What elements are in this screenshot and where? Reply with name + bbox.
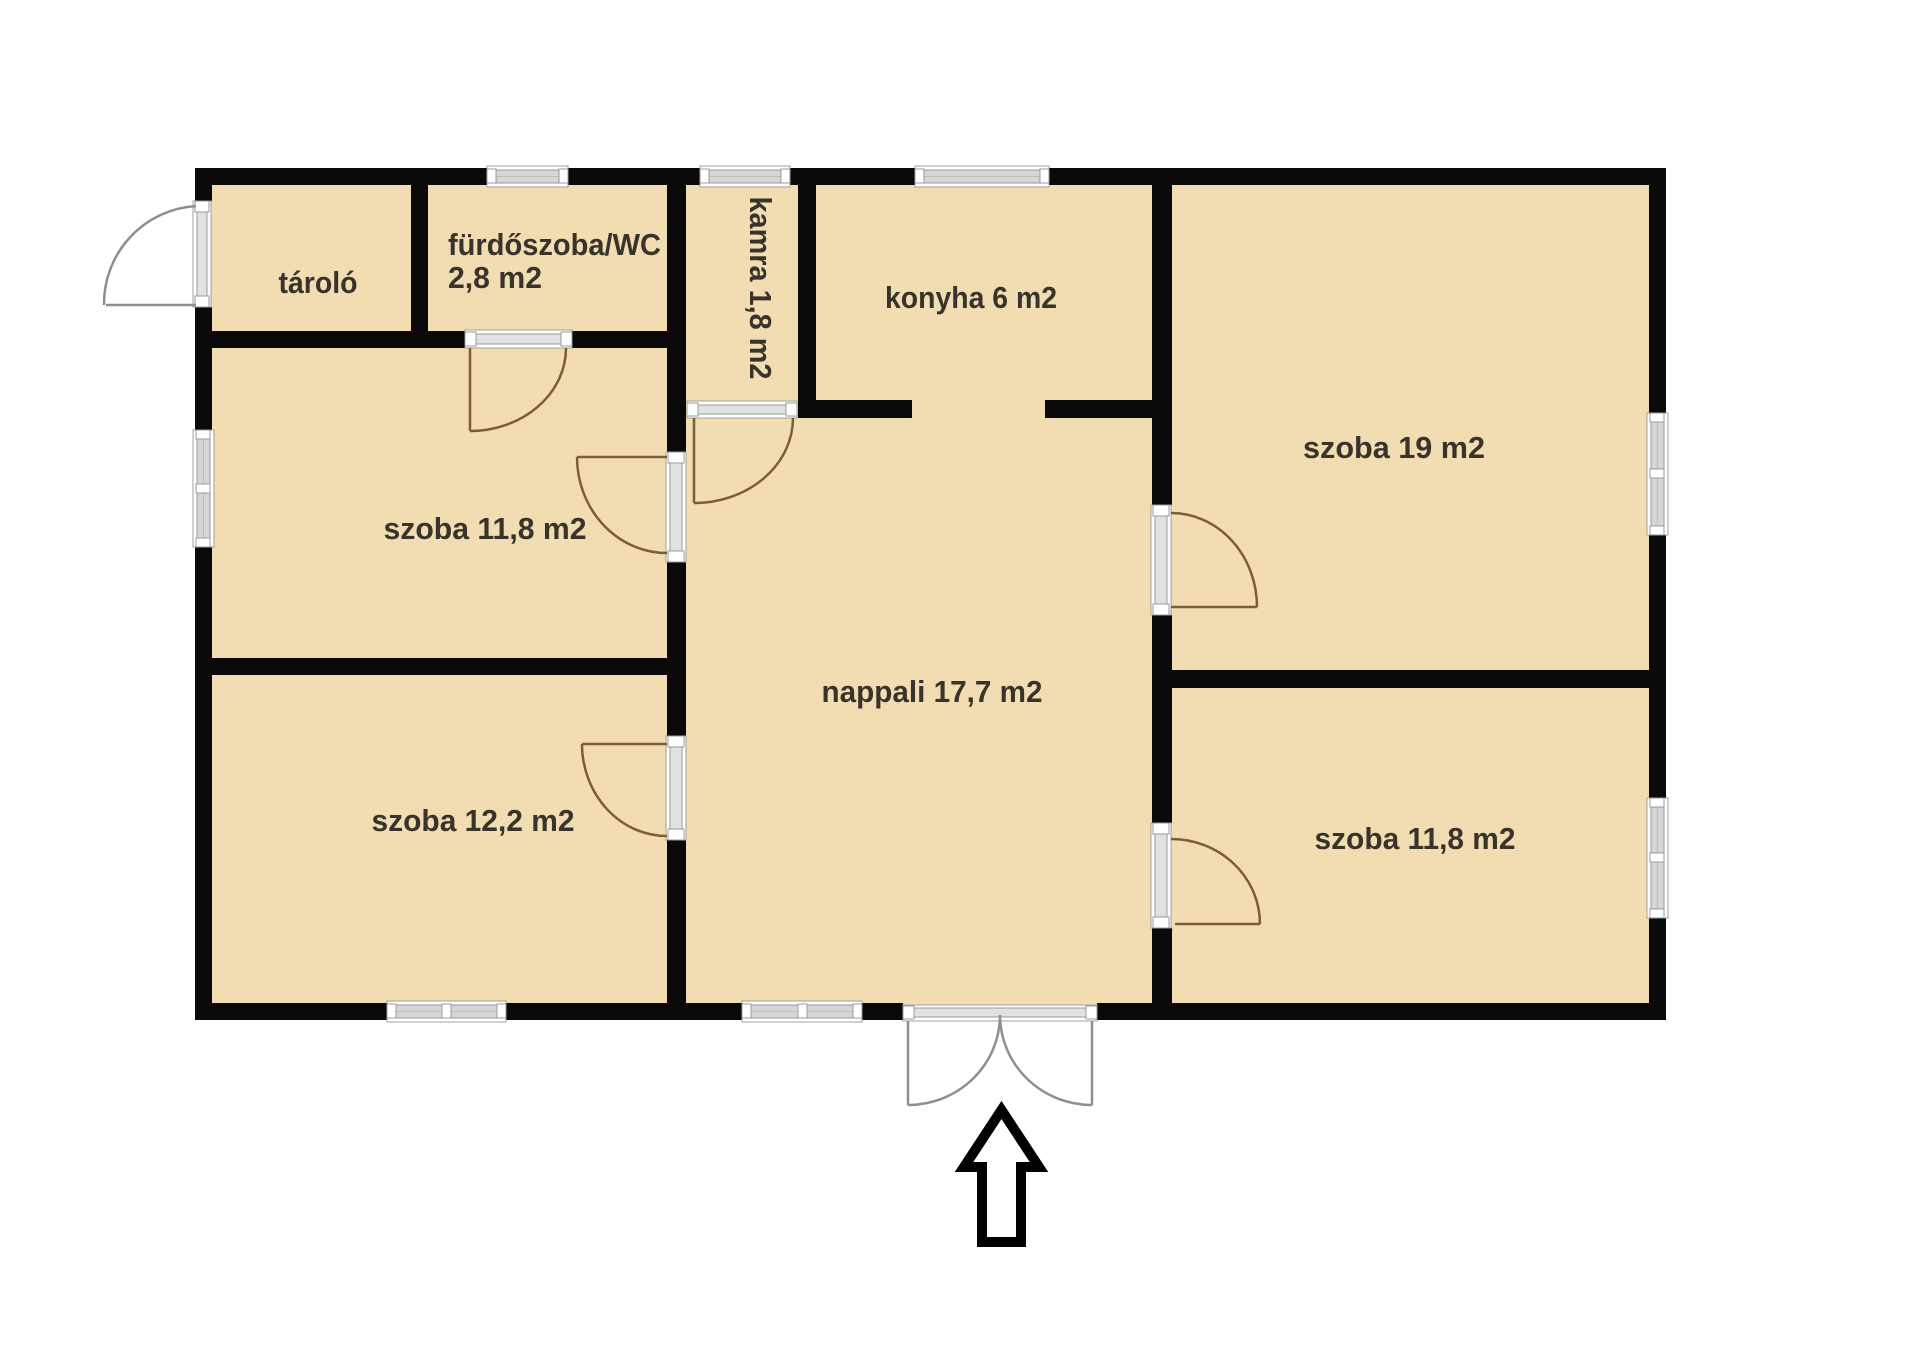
svg-text:konyha 6 m2: konyha 6 m2: [885, 280, 1057, 315]
svg-text:fürdőszoba/WC: fürdőszoba/WC: [448, 227, 661, 262]
svg-text:szoba 12,2 m2: szoba 12,2 m2: [372, 803, 575, 838]
svg-text:2,8 m2: 2,8 m2: [448, 260, 542, 295]
svg-text:szoba 11,8 m2: szoba 11,8 m2: [384, 511, 587, 546]
svg-text:szoba 11,8 m2: szoba 11,8 m2: [1315, 821, 1516, 856]
svg-text:nappali 17,7 m2: nappali 17,7 m2: [822, 674, 1043, 709]
svg-text:tároló: tároló: [279, 265, 358, 300]
svg-text:szoba 19 m2: szoba 19 m2: [1303, 430, 1485, 465]
svg-text:kamra 1,8 m2: kamra 1,8 m2: [743, 197, 778, 380]
